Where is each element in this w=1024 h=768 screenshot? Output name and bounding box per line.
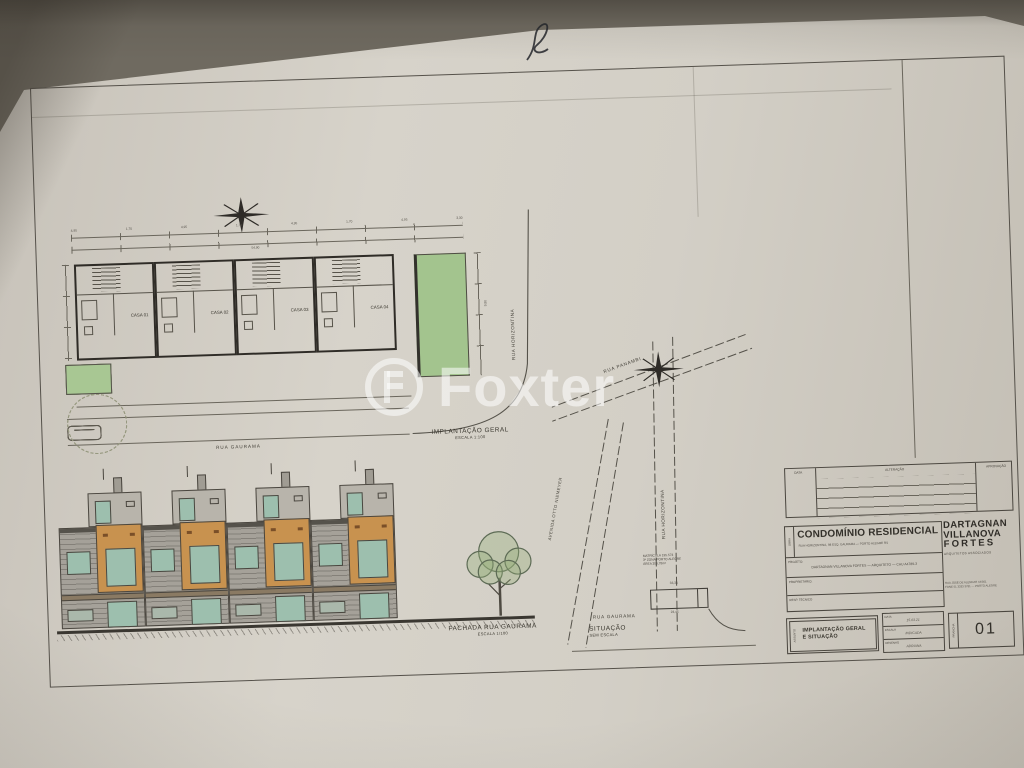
vent — [210, 498, 219, 504]
vent — [298, 527, 303, 530]
facade-tree — [459, 524, 540, 619]
chimney — [197, 474, 207, 490]
window — [189, 545, 220, 584]
facade-elevation: FACHADA RUA GAURAMA ESCALA 1/100 — [52, 472, 563, 669]
chimney — [113, 477, 123, 493]
project-subtitle: RUA HORIZONTINA, 98 ESQ. GAURAMA — PORTO… — [799, 541, 889, 548]
stairs — [172, 264, 201, 289]
vent — [126, 501, 135, 507]
assunto-cell: ASSUNTO — [790, 619, 799, 653]
vent — [294, 495, 303, 501]
top-floor-volume — [339, 483, 394, 519]
glass-door — [359, 592, 390, 619]
window — [357, 539, 388, 578]
firm-address-line: FONE 51 3333 3781 — PORTO ALEGRE — [945, 583, 997, 589]
window — [67, 609, 93, 622]
revision-header-alteracao: ALTERAÇÃO — [885, 467, 904, 472]
title-row-resp: RESP. TÉCNICO — [787, 590, 944, 613]
glass-door — [107, 601, 138, 628]
sheet-number-box: PRANCHA 01 — [948, 611, 1015, 649]
divider-line-a — [693, 67, 699, 217]
lot-dim-bottom: 23,45 — [671, 611, 679, 615]
obra-label: OBRA — [787, 538, 791, 546]
facade-unit — [309, 483, 398, 624]
window — [234, 546, 259, 570]
firm-address: RUA JOSÉ DE ALENCAR 44/301 FONE 51 3333 … — [945, 579, 997, 589]
divider-line-b — [902, 60, 916, 458]
bathroom — [161, 297, 178, 318]
facade-body — [227, 520, 314, 624]
proprietario-label: PROPRIETÁRIO: — [789, 579, 813, 584]
glass-door — [191, 598, 222, 625]
info-row: DESENHO ADRIANA — [884, 637, 944, 652]
dim-value: 1,70 — [126, 227, 132, 231]
resp-tecnico-label: RESP. TÉCNICO — [789, 597, 812, 602]
top-floor-volume — [87, 492, 142, 528]
assunto-label: ASSUNTO — [792, 629, 796, 643]
sheet-subject-line: E SITUAÇÃO — [803, 633, 866, 642]
fixture — [324, 318, 333, 327]
dim-value: 1,70 — [346, 219, 352, 223]
fixture — [244, 321, 253, 330]
interior-wall — [157, 289, 233, 293]
house-label: CASA 01 — [131, 312, 149, 318]
facade-body — [143, 523, 230, 627]
street-label-gaurama: RUA GAURAMA — [216, 444, 261, 451]
tree-symbol — [66, 393, 128, 455]
bathroom — [321, 292, 338, 313]
window — [318, 543, 343, 567]
info-value: ADRIANA — [884, 643, 944, 649]
facade-unit — [57, 492, 146, 633]
fixture — [84, 326, 93, 335]
chimney — [281, 472, 291, 488]
stairs — [332, 259, 361, 284]
sheet-number: 01 — [958, 612, 1014, 648]
window — [95, 501, 112, 525]
window — [150, 548, 175, 572]
projeto-value: DARTAGNAN VILLANOVA FORTES — ARQUITETO —… — [786, 561, 942, 570]
lot-rectangle — [650, 588, 709, 610]
house-label: CASA 03 — [291, 307, 309, 313]
info-value: INDICADA — [884, 630, 944, 636]
obra-cell: OBRA — [785, 527, 795, 557]
house-label: CASA 02 — [211, 310, 229, 316]
fold-line — [32, 88, 892, 118]
window — [273, 542, 304, 581]
interior-wall — [193, 291, 195, 333]
dim-value: 4,95 — [181, 225, 187, 229]
bathroom — [241, 295, 258, 316]
lot-dim-top: 33,34 — [670, 582, 678, 586]
info-table: DATA 15.03.21 ESCALA INDICADA DESENHO AD… — [882, 611, 945, 653]
north-compass-icon — [630, 348, 687, 390]
situation-caption: SITUAÇÃO SEM ESCALA — [589, 623, 659, 637]
window — [105, 548, 136, 587]
interior-wall — [353, 285, 355, 327]
window — [179, 498, 196, 522]
sheet-subject-stamp: ASSUNTO IMPLANTAÇÃO GERAL E SITUAÇÃO — [786, 615, 879, 654]
street-curb-curve — [400, 203, 548, 443]
glass-door — [275, 595, 306, 622]
dim-value: 4,95 — [291, 221, 297, 225]
house-plan-unit: CASA 03 — [234, 257, 317, 356]
vent — [130, 533, 135, 536]
facade-body — [59, 526, 146, 630]
interior-wall — [113, 293, 115, 335]
title-block: OBRA CONDOMÍNIO RESIDENCIAL RUA HORIZONT… — [784, 521, 945, 612]
blueprint-photo: 4,95 1,70 4,95 1,70 4,95 1,70 4,95 3,30 … — [0, 0, 1024, 768]
wood-panel-volume — [347, 515, 395, 584]
firm-tagline: ARQUITETOS ASSOCIADOS — [944, 550, 1016, 556]
house-plan-unit: CASA 04 — [314, 254, 397, 353]
revision-table: DATA ALTERAÇÃO APROVAÇÃO — [784, 461, 1014, 519]
sidewalk-line — [77, 396, 412, 408]
vent — [214, 530, 219, 533]
window — [235, 604, 261, 617]
wood-panel-volume — [96, 524, 144, 593]
house-label: CASA 04 — [371, 304, 389, 310]
dim-value: 1,70 — [236, 223, 242, 227]
project-title: CONDOMÍNIO RESIDENCIAL — [797, 525, 938, 541]
revision-header-aprovacao: APROVAÇÃO — [986, 464, 1006, 469]
wood-panel-volume — [179, 521, 227, 590]
facade-unit — [141, 489, 230, 630]
sheet-subject-line: IMPLANTAÇÃO GERAL — [802, 626, 865, 635]
drawing-sheet: 4,95 1,70 4,95 1,70 4,95 1,70 4,95 3,30 … — [30, 56, 1024, 688]
firm-name-line: FORTES — [943, 538, 1015, 550]
fixture — [164, 323, 173, 332]
interior-wall — [237, 287, 313, 291]
lot-note: MATRÍCULA 195.573 3ª ZONA PORTO ALEGRE Á… — [643, 553, 682, 567]
house-plan-unit: CASA 02 — [154, 259, 237, 358]
vent — [382, 524, 387, 527]
interior-wall — [77, 292, 153, 296]
facade-unit — [225, 486, 314, 627]
revision-header-data: DATA — [794, 471, 802, 475]
sheet-subject: IMPLANTAÇÃO GERAL E SITUAÇÃO — [802, 626, 866, 642]
prancha-label: PRANCHA — [951, 624, 955, 638]
window — [66, 551, 91, 575]
facade-units-row — [52, 483, 401, 632]
dim-value: 4,95 — [71, 229, 77, 233]
vent — [355, 525, 360, 528]
patio-garden — [65, 363, 112, 395]
bathroom — [81, 300, 98, 321]
vent — [187, 531, 192, 534]
site-plan: 4,95 1,70 4,95 1,70 4,95 1,70 4,95 3,30 … — [61, 213, 559, 479]
top-floor-volume — [171, 489, 226, 525]
vent — [103, 534, 108, 537]
stairs — [252, 262, 281, 287]
vent — [378, 492, 387, 498]
revision-rows — [816, 474, 976, 518]
dim-total: 54,90 — [251, 246, 259, 250]
info-value: 15.03.21 — [883, 617, 943, 623]
window — [319, 601, 345, 614]
stairs — [92, 267, 121, 292]
interior-wall — [317, 284, 393, 288]
pen-scribble — [515, 14, 567, 66]
architect-firm-block: DARTAGNAN VILLANOVA FORTES ARQUITETOS AS… — [943, 519, 1018, 607]
projeto-label: PROJETO: — [788, 559, 803, 563]
window — [347, 492, 364, 516]
interior-wall — [273, 288, 275, 330]
chimney — [365, 469, 375, 485]
window — [151, 606, 177, 619]
wood-panel-volume — [263, 518, 311, 587]
facade-body — [310, 517, 397, 621]
situation-map: RUA PANAMBI RUA HORIZONTINA AVENIDA OTTO… — [549, 306, 770, 663]
house-plan-unit: CASA 01 — [74, 262, 157, 361]
top-floor-volume — [255, 486, 310, 522]
vent — [271, 528, 276, 531]
window — [263, 495, 280, 519]
